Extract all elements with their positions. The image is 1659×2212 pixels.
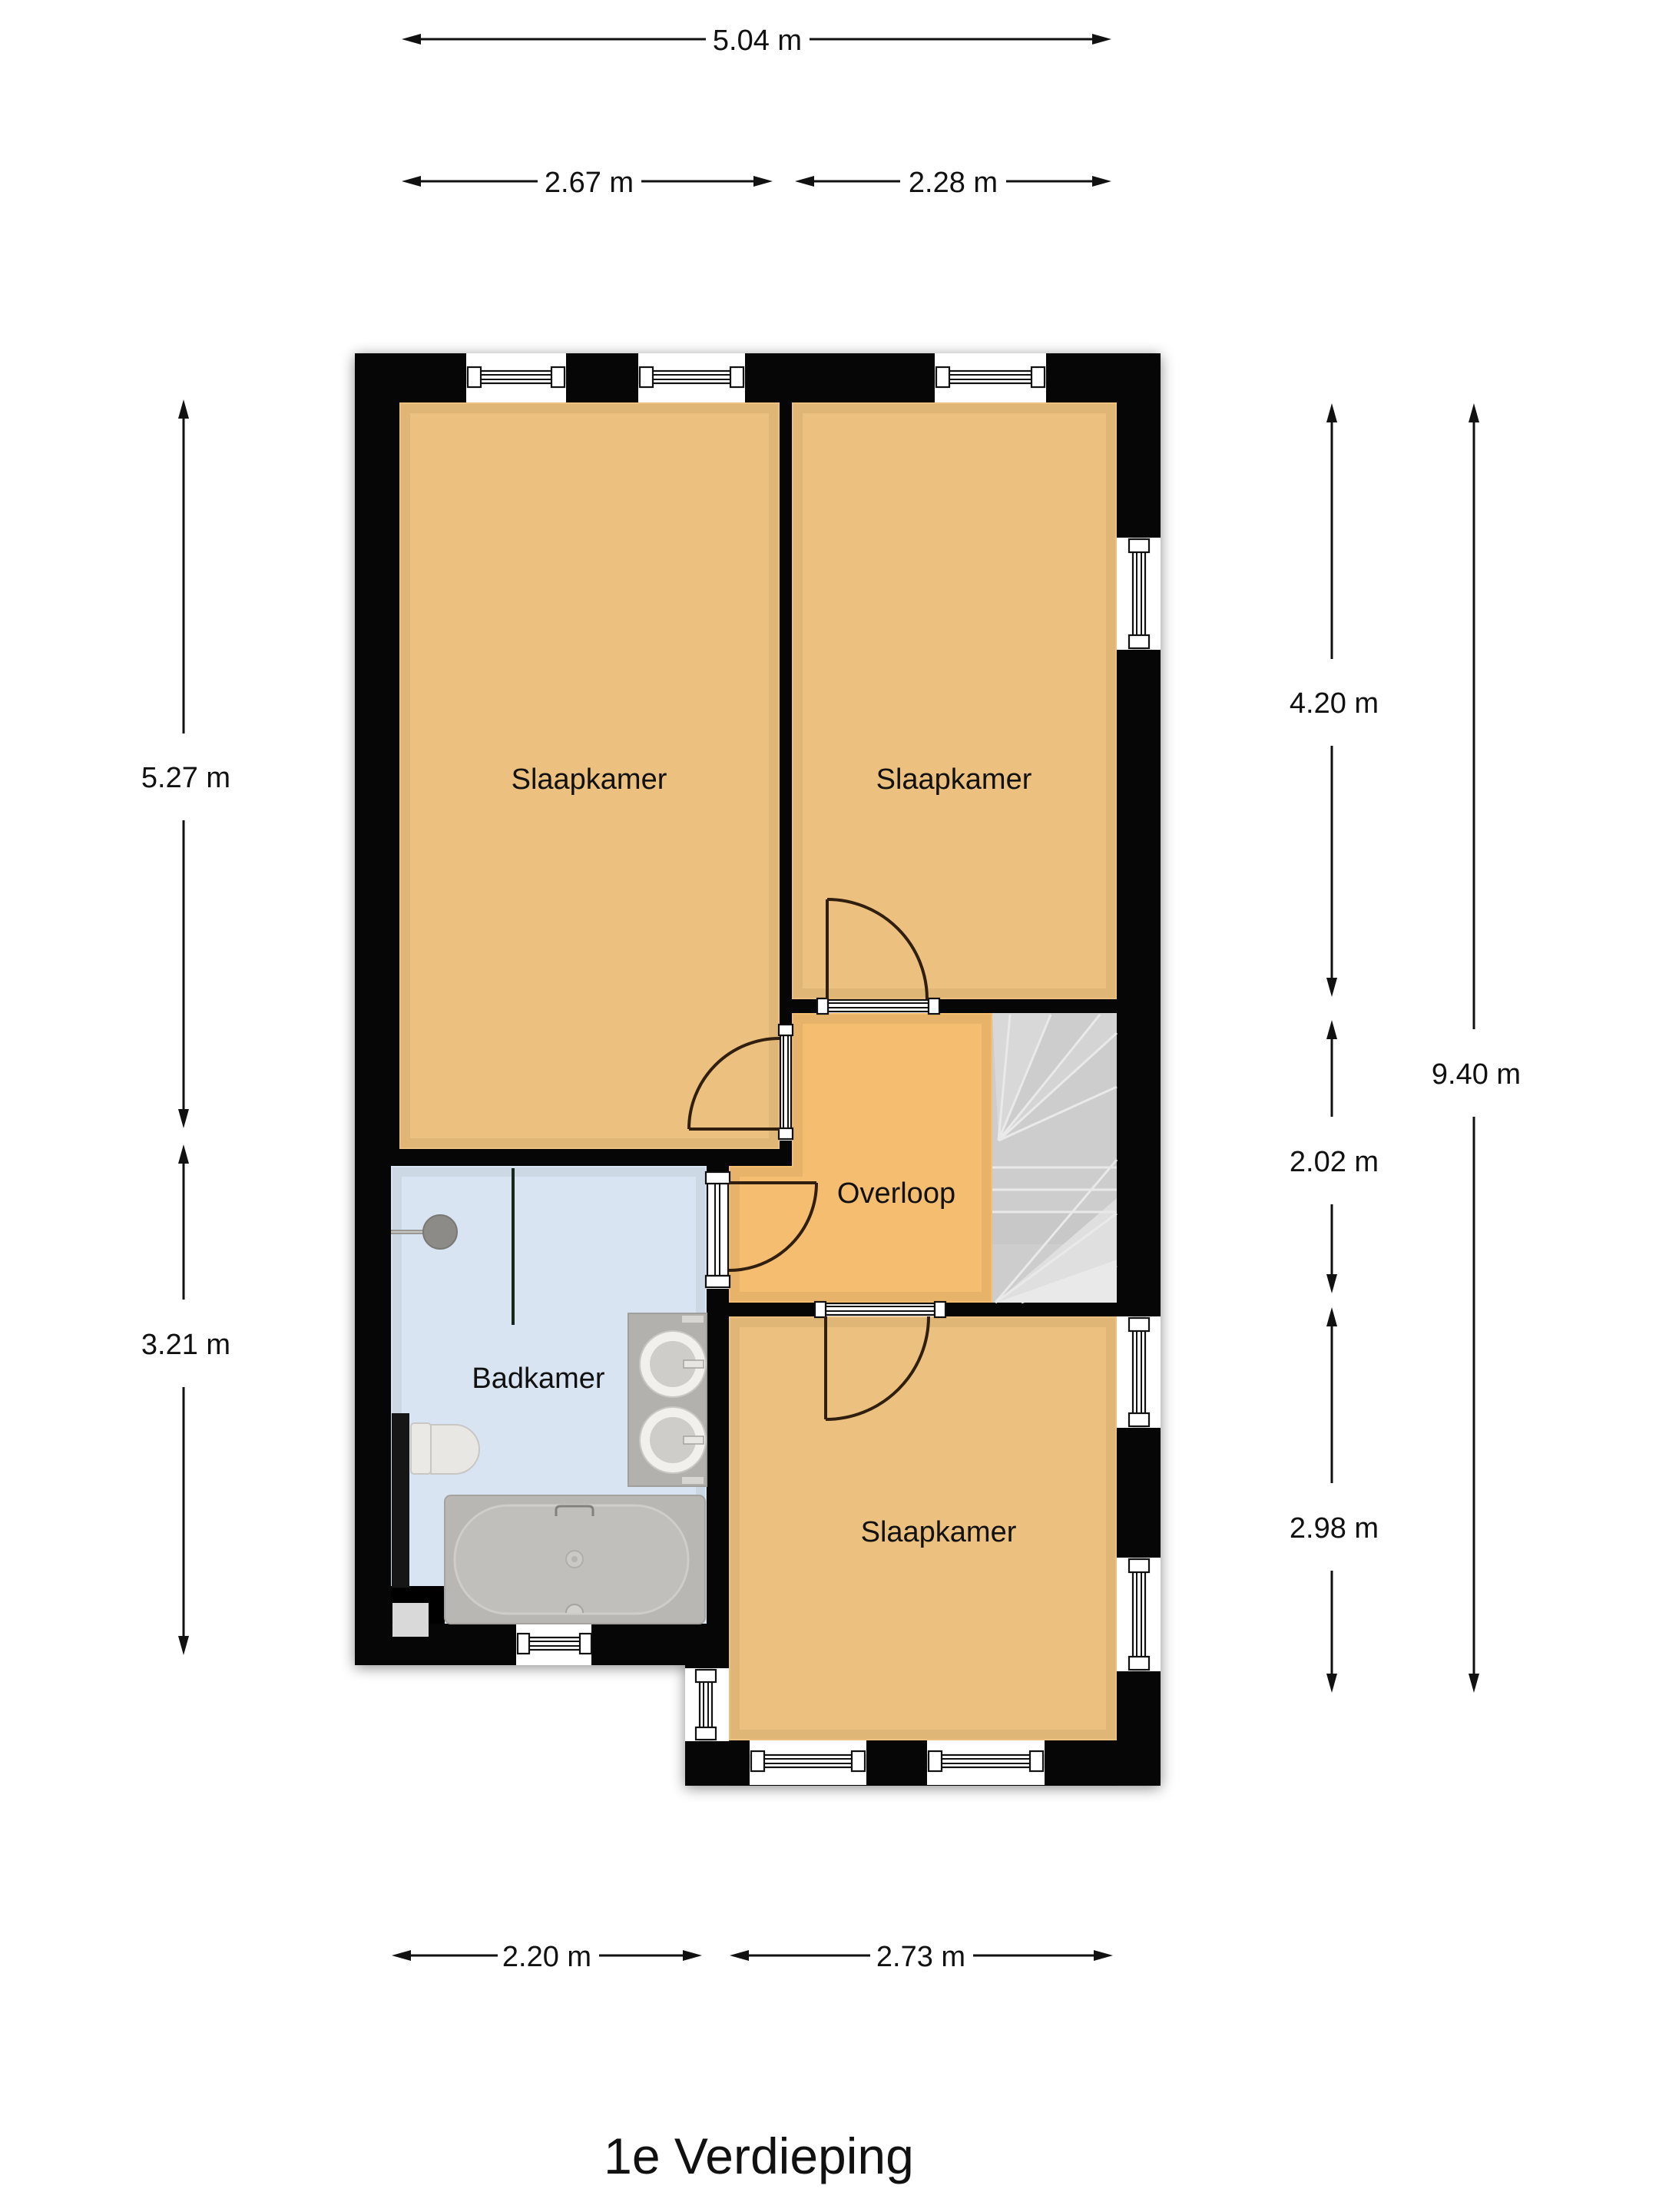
svg-text:Slaapkamer: Slaapkamer bbox=[512, 763, 667, 796]
svg-text:3.21 m: 3.21 m bbox=[141, 1329, 230, 1361]
svg-text:9.40 m: 9.40 m bbox=[1432, 1058, 1521, 1091]
svg-text:2.02 m: 2.02 m bbox=[1290, 1146, 1379, 1178]
svg-text:Overloop: Overloop bbox=[837, 1177, 955, 1210]
svg-text:2.67 m: 2.67 m bbox=[545, 167, 634, 199]
svg-text:5.27 m: 5.27 m bbox=[141, 762, 230, 794]
svg-text:2.98 m: 2.98 m bbox=[1290, 1512, 1379, 1545]
svg-text:5.04 m: 5.04 m bbox=[713, 25, 802, 57]
svg-text:Slaapkamer: Slaapkamer bbox=[861, 1516, 1017, 1548]
svg-text:2.73 m: 2.73 m bbox=[876, 1941, 965, 1973]
svg-text:Badkamer: Badkamer bbox=[472, 1363, 605, 1395]
svg-text:1e Verdieping: 1e Verdieping bbox=[604, 2128, 914, 2184]
svg-text:2.20 m: 2.20 m bbox=[502, 1941, 591, 1973]
svg-text:4.20 m: 4.20 m bbox=[1290, 687, 1379, 720]
svg-text:2.28 m: 2.28 m bbox=[909, 167, 998, 199]
svg-text:Slaapkamer: Slaapkamer bbox=[876, 763, 1032, 796]
